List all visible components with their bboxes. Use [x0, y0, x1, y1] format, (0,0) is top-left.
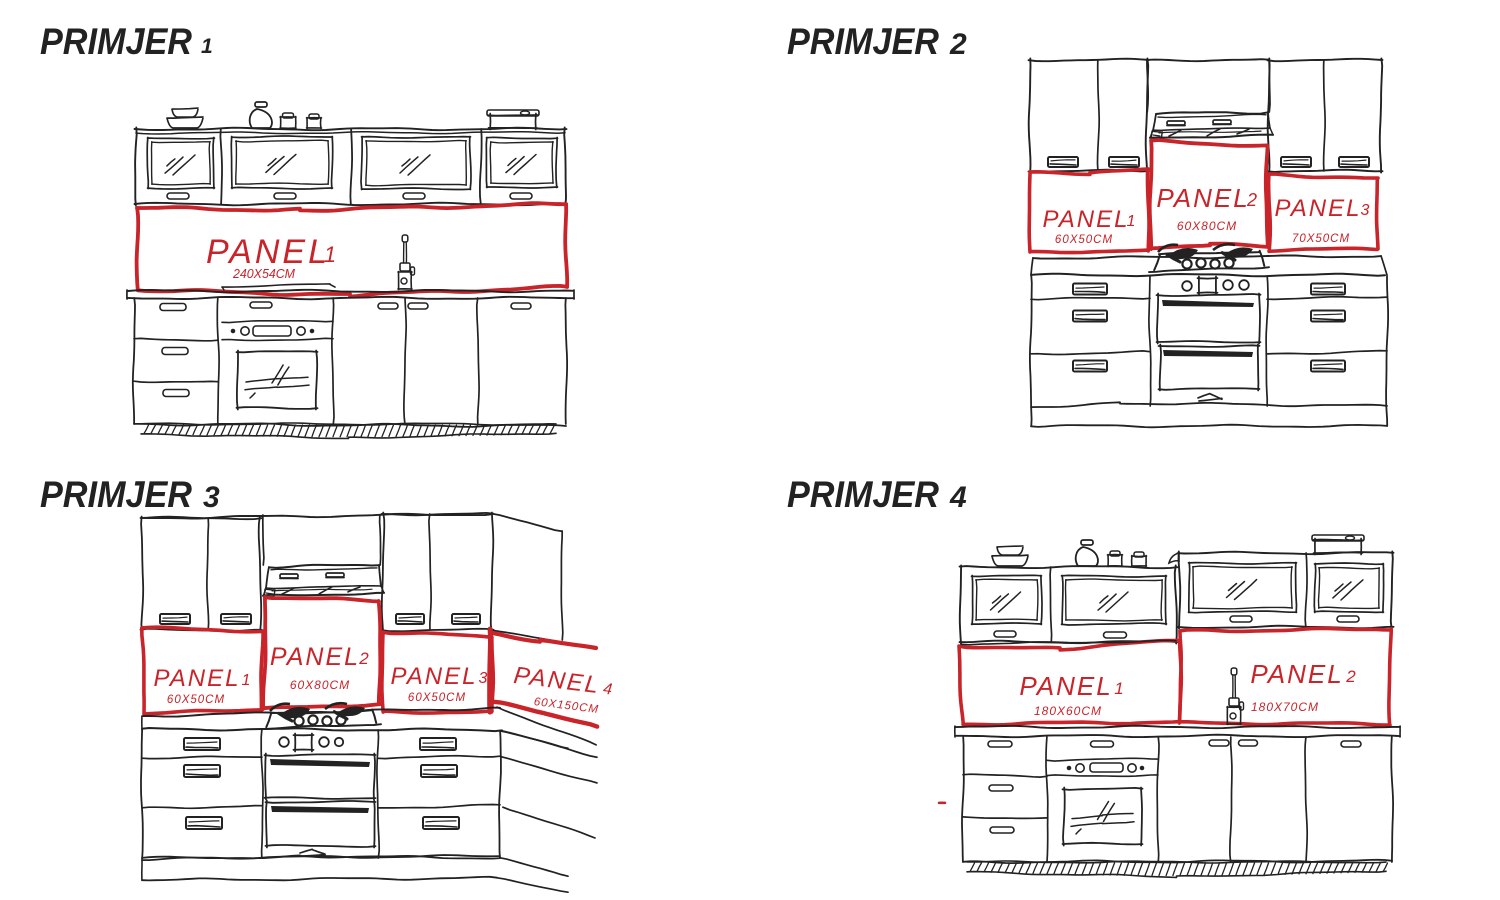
svg-text:1: 1	[201, 35, 213, 58]
svg-text:3: 3	[1361, 202, 1370, 219]
svg-text:PRIMJER: PRIMJER	[40, 21, 192, 62]
svg-text:PANEL: PANEL	[391, 663, 478, 690]
svg-text:PANEL: PANEL	[206, 233, 330, 271]
svg-text:3: 3	[203, 481, 220, 514]
svg-text:PRIMJER: PRIMJER	[787, 474, 939, 515]
svg-text:2: 2	[358, 649, 369, 668]
svg-text:PANEL: PANEL	[1156, 183, 1249, 213]
svg-text:PANEL: PANEL	[1250, 659, 1343, 689]
svg-text:60X80CM: 60X80CM	[290, 678, 350, 692]
svg-text:60X50CM: 60X50CM	[408, 692, 466, 704]
svg-text:180X60CM: 180X60CM	[1034, 704, 1102, 718]
svg-text:1: 1	[324, 242, 336, 267]
svg-text:2: 2	[1345, 667, 1356, 686]
svg-text:1: 1	[242, 672, 251, 689]
svg-text:PANEL: PANEL	[1043, 206, 1130, 233]
svg-text:PANEL: PANEL	[1275, 195, 1362, 222]
svg-text:60X50CM: 60X50CM	[1055, 234, 1113, 246]
svg-text:180X70CM: 180X70CM	[1251, 700, 1319, 714]
svg-text:60X80CM: 60X80CM	[1177, 219, 1237, 233]
svg-text:PANEL: PANEL	[1019, 671, 1112, 701]
svg-text:2: 2	[1246, 190, 1257, 210]
svg-text:1: 1	[1127, 213, 1136, 230]
svg-text:240X54CM: 240X54CM	[232, 267, 296, 281]
svg-text:PANEL: PANEL	[270, 643, 360, 671]
svg-text:4: 4	[949, 481, 967, 514]
svg-text:PRIMJER: PRIMJER	[787, 21, 939, 62]
svg-text:1: 1	[1114, 679, 1123, 698]
svg-text:PRIMJER: PRIMJER	[40, 474, 192, 515]
svg-text:70X50CM: 70X50CM	[1292, 233, 1350, 245]
svg-text:2: 2	[949, 28, 967, 61]
svg-text:60X50CM: 60X50CM	[167, 694, 225, 706]
svg-text:PANEL: PANEL	[154, 665, 241, 692]
svg-text:3: 3	[479, 670, 488, 687]
